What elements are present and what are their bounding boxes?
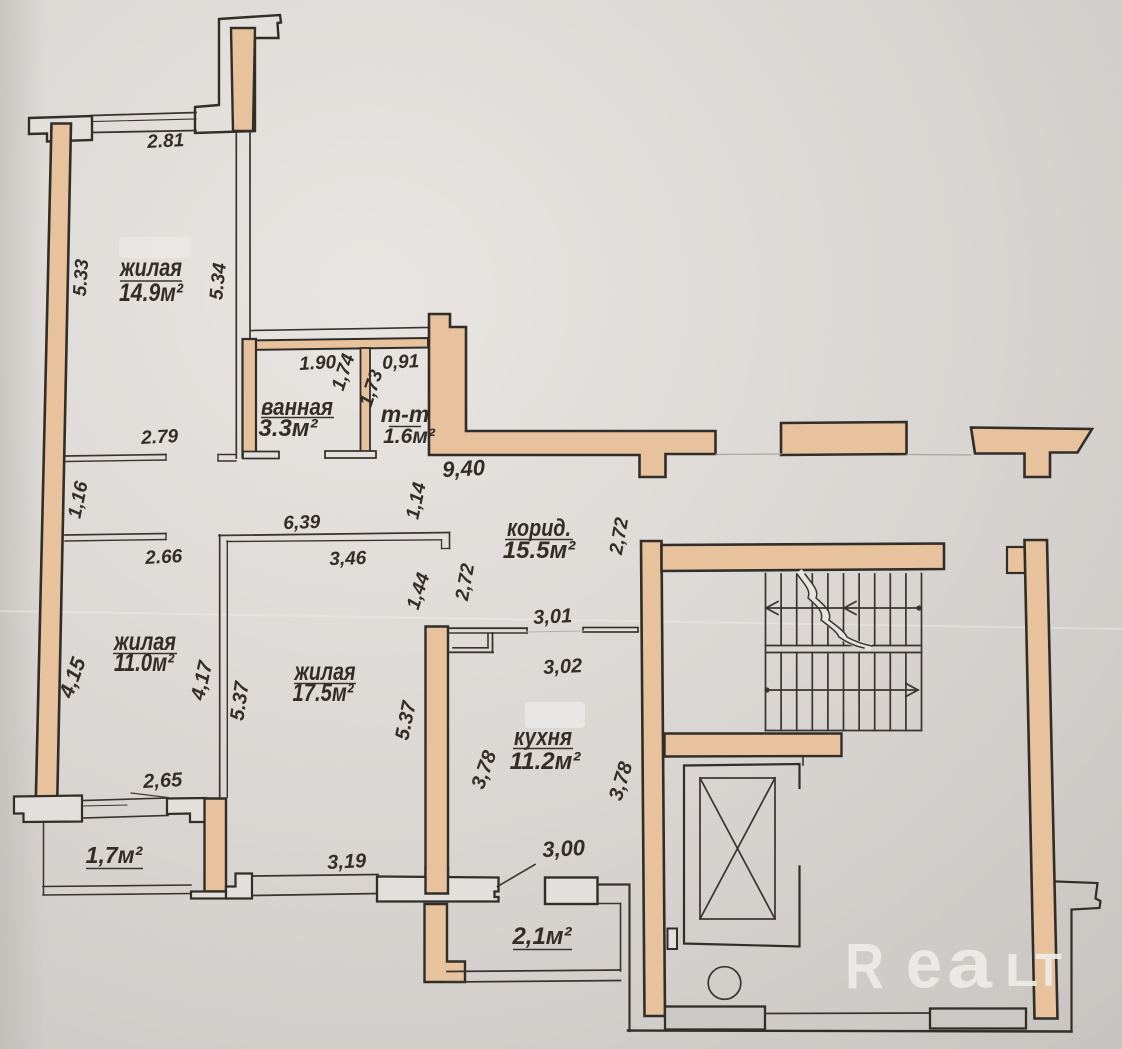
- svg-text:3.3м²: 3.3м²: [258, 415, 318, 442]
- svg-text:2,65: 2,65: [142, 769, 184, 793]
- svg-text:2.79: 2.79: [140, 426, 179, 449]
- svg-text:1.6м²: 1.6м²: [383, 425, 436, 448]
- svg-text:2.66: 2.66: [144, 546, 183, 569]
- svg-text:1.90: 1.90: [299, 352, 337, 375]
- svg-text:11.0м²: 11.0м²: [114, 649, 175, 677]
- svg-text:т-т: т-т: [381, 401, 430, 427]
- svg-text:11.2м²: 11.2м²: [510, 748, 582, 775]
- svg-text:5.33: 5.33: [70, 258, 94, 297]
- svg-text:15.5м²: 15.5м²: [503, 537, 576, 564]
- svg-text:3,46: 3,46: [329, 548, 367, 570]
- svg-text:0,91: 0,91: [382, 351, 420, 374]
- svg-text:14.9м²: 14.9м²: [119, 279, 184, 307]
- svg-text:кухня: кухня: [514, 724, 572, 751]
- svg-text:3,02: 3,02: [543, 655, 583, 679]
- svg-text:17.5м²: 17.5м²: [293, 679, 355, 707]
- svg-text:3,01: 3,01: [533, 605, 573, 629]
- svg-text:9,40: 9,40: [442, 455, 487, 482]
- svg-text:a: a: [947, 925, 993, 1003]
- svg-text:R: R: [845, 931, 884, 1003]
- svg-text:T: T: [1035, 944, 1062, 996]
- svg-text:2.81: 2.81: [146, 130, 185, 153]
- svg-text:3,00: 3,00: [542, 835, 587, 862]
- svg-text:L: L: [1005, 944, 1038, 996]
- svg-text:2,1м²: 2,1м²: [511, 923, 572, 950]
- svg-text:1,7м²: 1,7м²: [86, 842, 144, 868]
- svg-text:e: e: [906, 925, 942, 1003]
- svg-text:5.34: 5.34: [206, 262, 231, 301]
- svg-text:3,19: 3,19: [327, 850, 368, 874]
- svg-text:6,39: 6,39: [283, 512, 321, 534]
- svg-text:жилая: жилая: [118, 254, 182, 282]
